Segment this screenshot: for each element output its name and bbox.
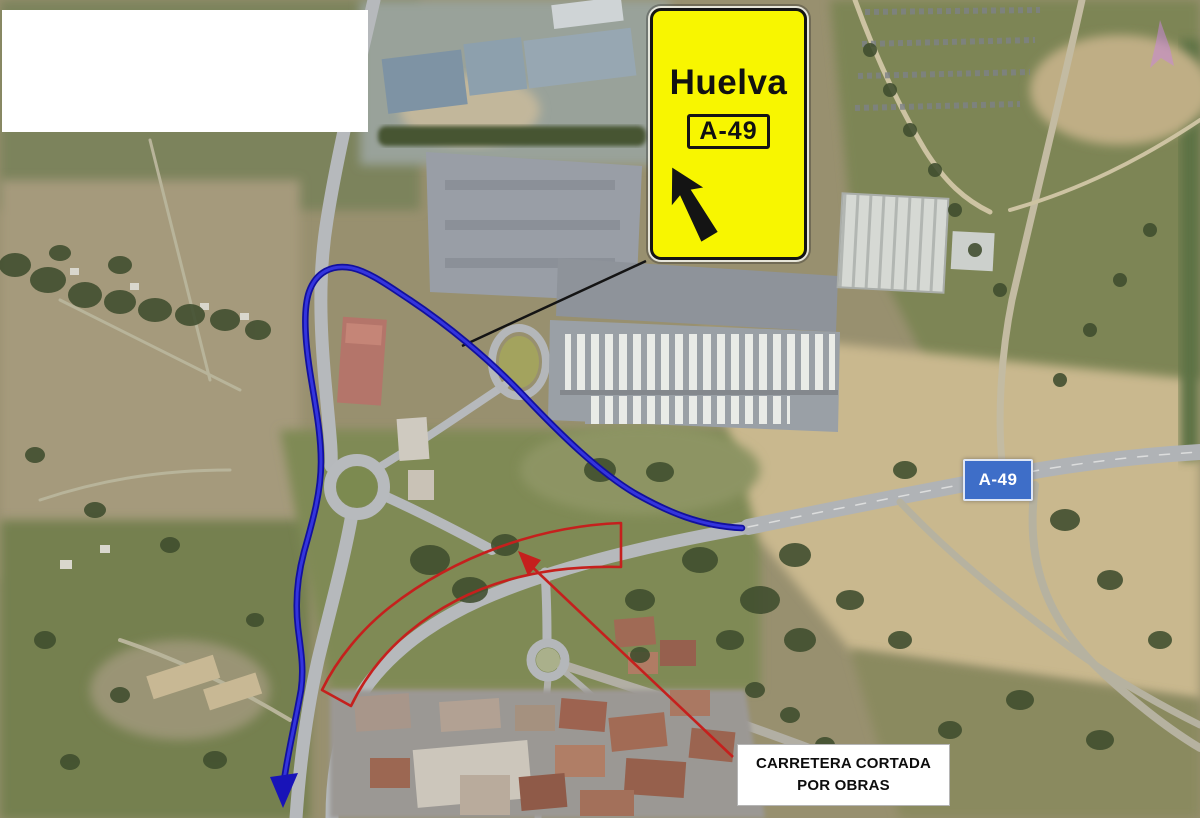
a49-road-shield-label: A-49	[979, 470, 1018, 490]
direction-sign: Huelva A-49	[650, 8, 807, 260]
arrow-up-left-icon	[653, 159, 729, 247]
closure-callout-line	[527, 562, 733, 757]
closure-label-line2: POR OBRAS	[738, 775, 949, 798]
route-line	[270, 267, 742, 808]
sign-callout-line	[462, 261, 646, 346]
sign-destination: Huelva	[653, 63, 804, 103]
blank-cover-box	[2, 10, 368, 132]
closed-road-outline	[322, 523, 621, 706]
pointer-cursor-icon	[1150, 20, 1174, 68]
closure-label: CARRETERA CORTADA POR OBRAS	[737, 744, 950, 806]
news-map-figure: Huelva A-49 A-49 CARRETERA CORTADA POR O…	[0, 0, 1200, 818]
sign-route-badge: A-49	[687, 114, 769, 149]
route-arrowhead-icon	[270, 773, 298, 808]
closure-label-line1: CARRETERA CORTADA	[738, 753, 949, 776]
a49-road-shield: A-49	[963, 459, 1033, 501]
sign-badge-row: A-49	[653, 114, 804, 149]
